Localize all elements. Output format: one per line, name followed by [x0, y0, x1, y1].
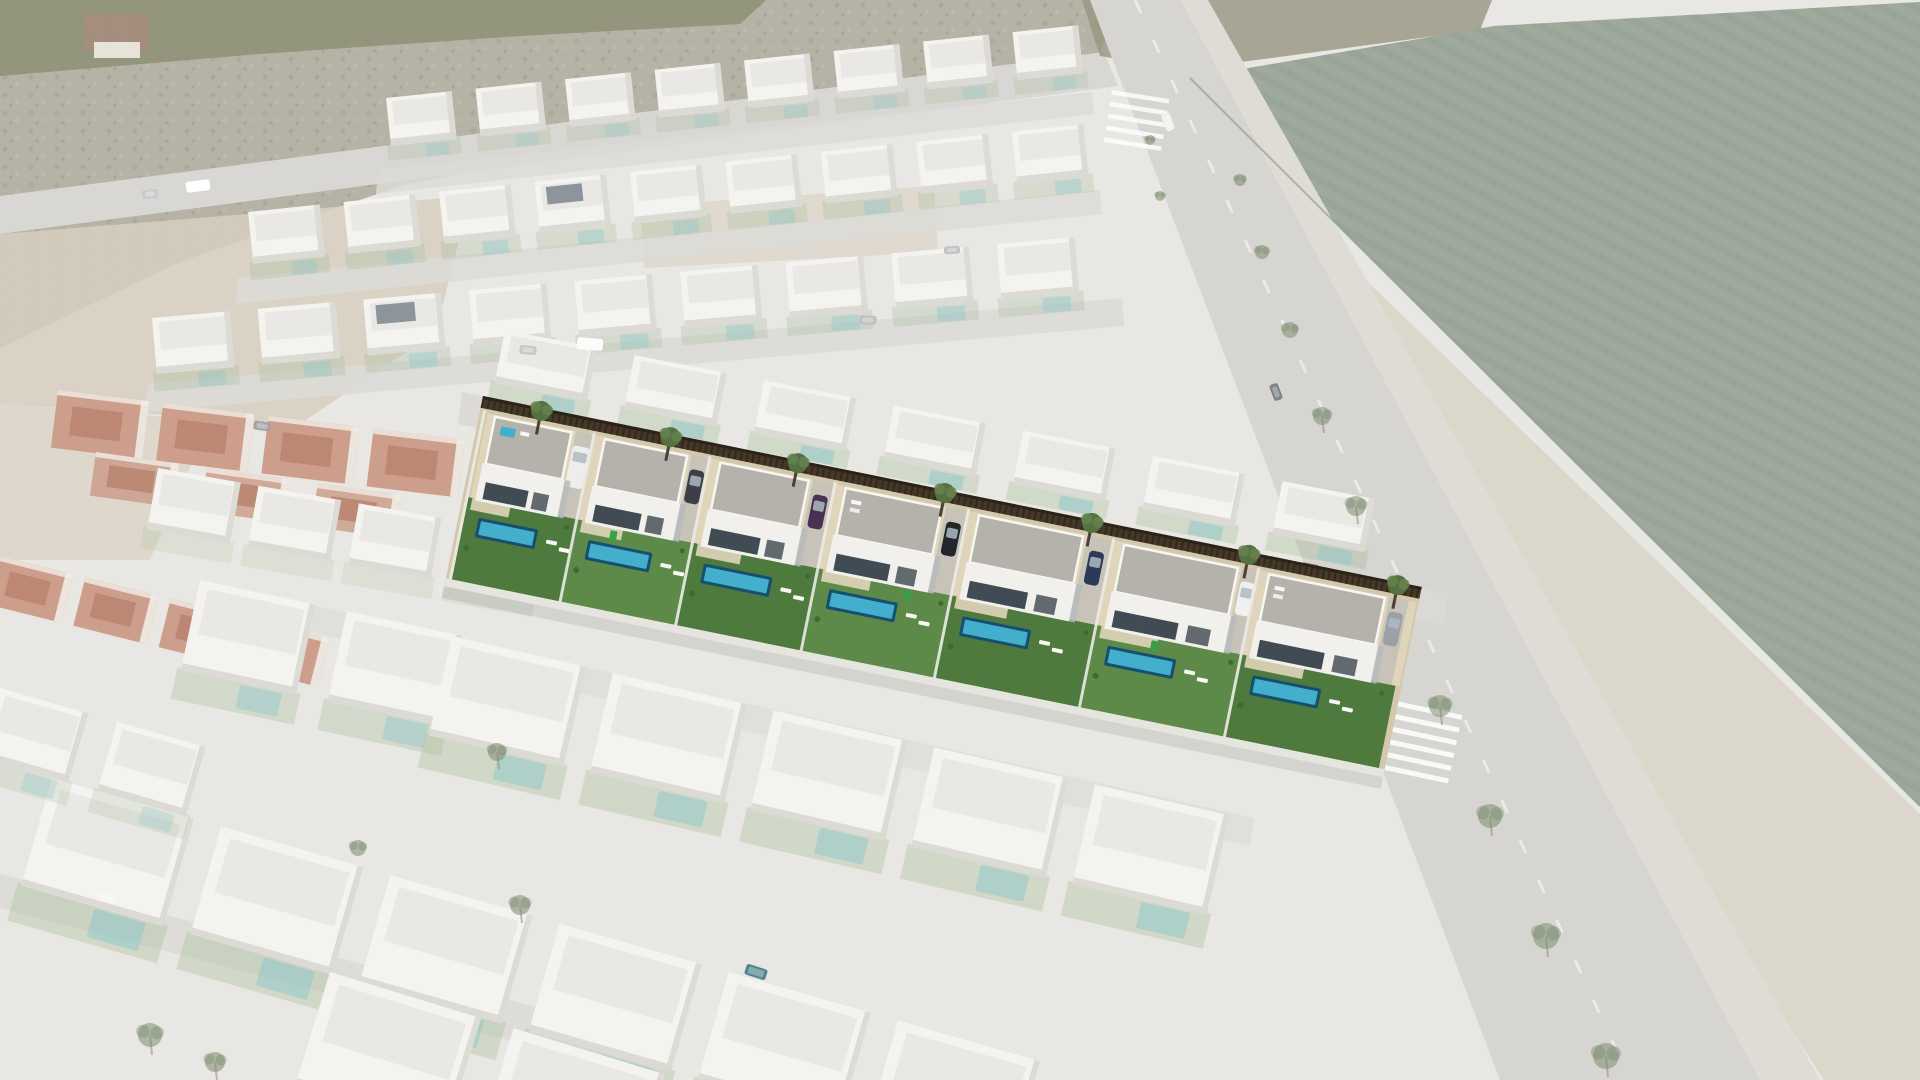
villa — [830, 44, 910, 114]
villa — [359, 292, 451, 373]
car-street-2 — [944, 245, 961, 254]
villa — [993, 237, 1085, 318]
villa — [254, 302, 346, 383]
villa — [530, 174, 617, 250]
villa — [912, 134, 999, 210]
villa — [782, 255, 874, 336]
villa — [887, 246, 979, 327]
villa — [244, 204, 331, 280]
villa — [919, 34, 999, 104]
villa — [1009, 25, 1089, 95]
van-street-3 — [577, 337, 604, 351]
car-street-3b — [859, 315, 877, 325]
villa — [472, 81, 552, 151]
car-street-3a — [519, 345, 537, 355]
villa — [382, 91, 462, 161]
villa — [626, 164, 713, 240]
scene-layers — [0, 0, 1920, 1080]
villa — [676, 265, 768, 346]
villa — [435, 184, 522, 260]
villa — [148, 311, 240, 392]
villa — [140, 467, 245, 563]
villa — [651, 62, 731, 132]
villa — [339, 194, 426, 270]
aerial-photo-svg — [0, 0, 1920, 1080]
villa — [561, 72, 641, 142]
villa — [1008, 124, 1095, 200]
villa — [817, 144, 904, 220]
villa — [740, 53, 820, 123]
aerial-photo — [0, 0, 1920, 1080]
villa — [721, 154, 808, 230]
villa — [240, 485, 345, 581]
farmhouse-wall — [94, 42, 140, 58]
villa — [341, 503, 446, 599]
